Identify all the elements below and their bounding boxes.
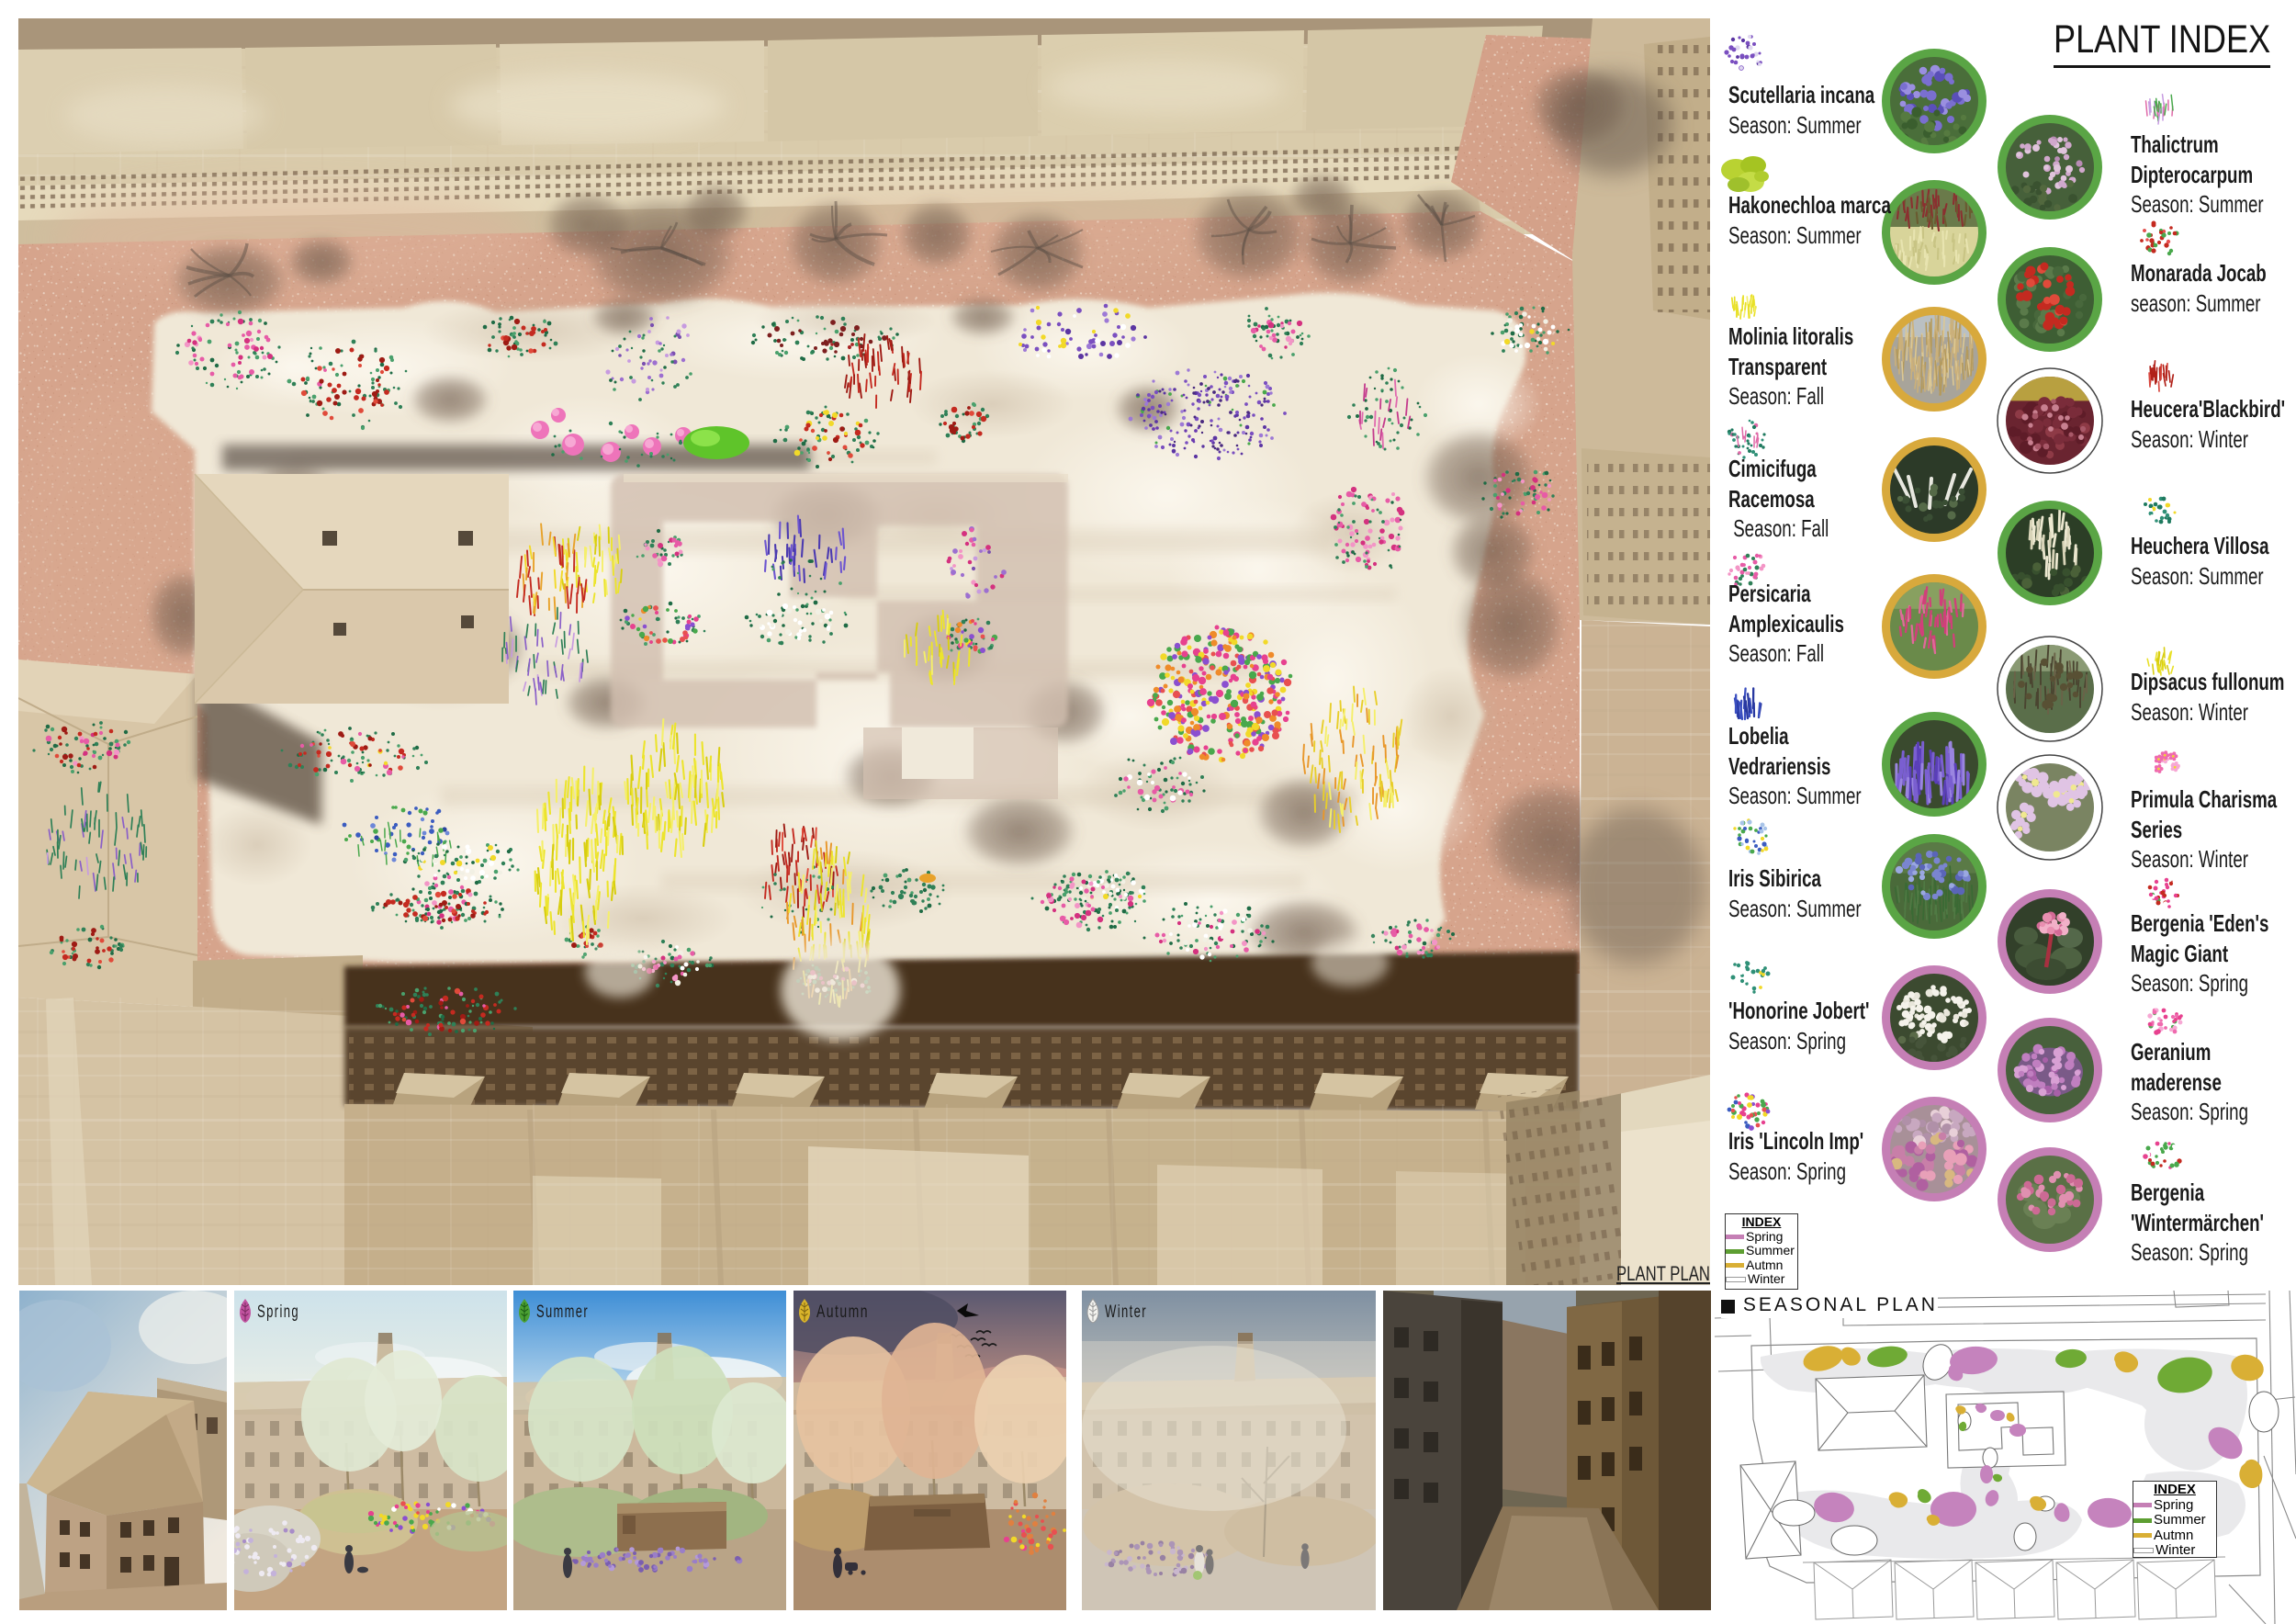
svg-text:Spring: Spring bbox=[257, 1303, 299, 1322]
svg-text:Summer: Summer bbox=[536, 1303, 589, 1322]
svg-text:Winter: Winter bbox=[1105, 1303, 1147, 1322]
svg-text:Autumn: Autumn bbox=[816, 1303, 869, 1322]
svg-text:PLANT PLAN: PLANT PLAN bbox=[1616, 1262, 1710, 1285]
